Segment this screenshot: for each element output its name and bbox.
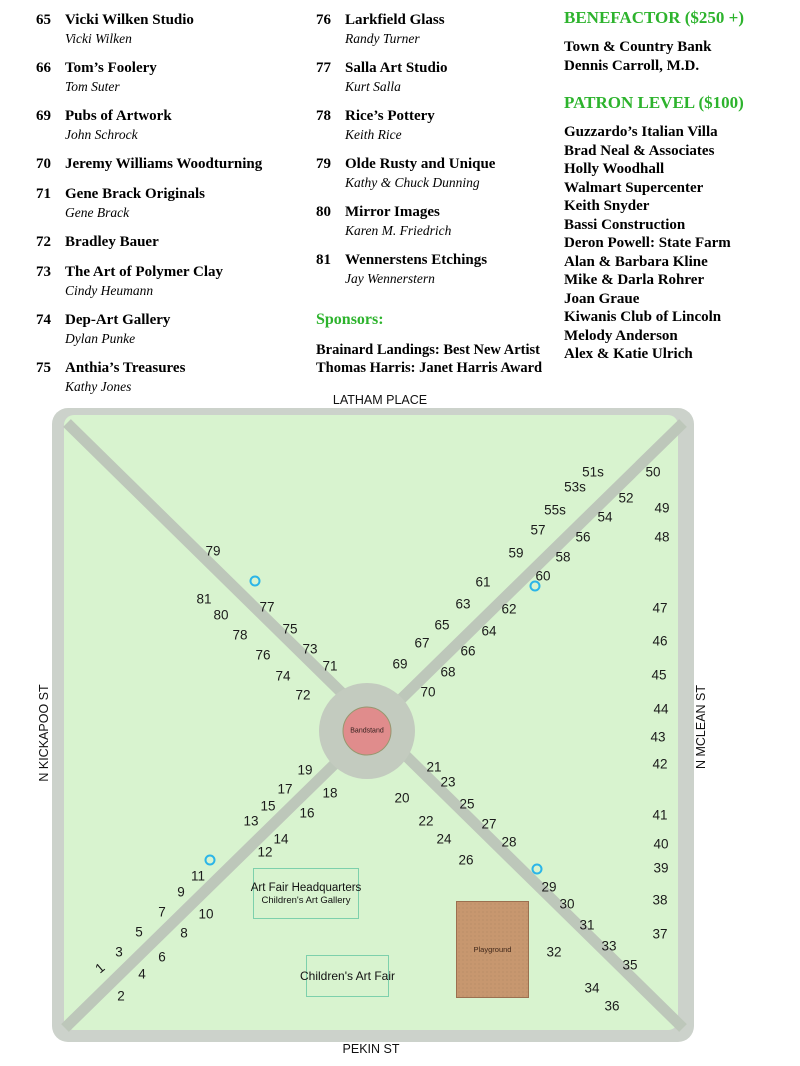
exhibitor-entry: 76Larkfield GlassRandy Turner bbox=[316, 12, 562, 47]
patron-item: Joan Graue bbox=[564, 290, 796, 309]
booth-number: 3 bbox=[115, 945, 123, 960]
booth-number: 20 bbox=[394, 791, 409, 806]
booth-number: 71 bbox=[322, 659, 337, 674]
booth-number: 2 bbox=[117, 989, 125, 1004]
booth-number: 26 bbox=[458, 853, 473, 868]
exhibitor-entry: 70Jeremy Williams Woodturning bbox=[36, 156, 314, 173]
booth-number: 55s bbox=[544, 503, 566, 518]
street-label-n-kickapoo-st: N KICKAPOO ST bbox=[37, 684, 51, 781]
booth-number: 41 bbox=[652, 808, 667, 823]
exhibitor-number: 75 bbox=[36, 360, 65, 377]
street-label-n-mclean-st: N MCLEAN ST bbox=[694, 685, 708, 769]
map-park-field bbox=[64, 415, 678, 1030]
benefactor-heading: BENEFACTOR ($250 +) bbox=[564, 8, 796, 28]
booth-number: 72 bbox=[295, 688, 310, 703]
exhibitor-artist: Jay Wennerstern bbox=[345, 271, 562, 287]
exhibitor-list: 76Larkfield GlassRandy Turner77Salla Art… bbox=[316, 12, 562, 287]
booth-number: 47 bbox=[652, 601, 667, 616]
patron-item: Holly Woodhall bbox=[564, 160, 796, 179]
exhibitor-entry: 78Rice’s PotteryKeith Rice bbox=[316, 108, 562, 143]
exhibitor-artist: Cindy Heumann bbox=[65, 283, 314, 299]
playground-label: Playground bbox=[474, 945, 512, 954]
exhibitor-column-2: 76Larkfield GlassRandy Turner77Salla Art… bbox=[316, 12, 562, 377]
exhibitor-name: The Art of Polymer Clay bbox=[65, 264, 223, 281]
booth-number: 23 bbox=[440, 775, 455, 790]
exhibitor-entry: 81Wennerstens EtchingsJay Wennerstern bbox=[316, 252, 562, 287]
booth-number: 6 bbox=[158, 950, 166, 965]
booth-number: 80 bbox=[213, 608, 228, 623]
patron-heading: PATRON LEVEL ($100) bbox=[564, 93, 796, 113]
patron-item: Alan & Barbara Kline bbox=[564, 253, 796, 272]
booth-number: 22 bbox=[418, 814, 433, 829]
booth-number: 4 bbox=[138, 967, 146, 982]
booth-number: 29 bbox=[541, 880, 556, 895]
booth-number: 9 bbox=[177, 885, 185, 900]
exhibitor-title: 78Rice’s Pottery bbox=[316, 108, 562, 125]
booth-number: 56 bbox=[575, 530, 590, 545]
exhibitor-name: Rice’s Pottery bbox=[345, 108, 435, 125]
exhibitor-title: 75Anthia’s Treasures bbox=[36, 360, 314, 377]
sponsors-heading: Sponsors: bbox=[316, 311, 562, 329]
booth-number: 65 bbox=[434, 618, 449, 633]
exhibitor-title: 66Tom’s Foolery bbox=[36, 60, 314, 77]
booth-number: 53s bbox=[564, 480, 586, 495]
exhibitor-name: Vicki Wilken Studio bbox=[65, 12, 194, 29]
benefactor-item: Dennis Carroll, M.D. bbox=[564, 57, 796, 76]
booth-number: 50 bbox=[645, 465, 660, 480]
hq-title: Art Fair Headquarters bbox=[251, 882, 362, 894]
booth-number: 13 bbox=[243, 814, 258, 829]
water-fountain-marker bbox=[530, 581, 541, 592]
exhibitor-entry: 72Bradley Bauer bbox=[36, 234, 314, 251]
exhibitor-artist: Vicki Wilken bbox=[65, 31, 314, 47]
exhibitor-number: 79 bbox=[316, 156, 345, 173]
exhibitor-artist: Gene Brack bbox=[65, 205, 314, 221]
booth-number: 76 bbox=[255, 648, 270, 663]
patron-item: Bassi Construction bbox=[564, 216, 796, 235]
exhibitor-artist: Dylan Punke bbox=[65, 331, 314, 347]
exhibitor-column-1: 65Vicki Wilken StudioVicki Wilken66Tom’s… bbox=[36, 12, 314, 408]
exhibitor-title: 65Vicki Wilken Studio bbox=[36, 12, 314, 29]
booth-number: 42 bbox=[652, 757, 667, 772]
exhibitor-name: Bradley Bauer bbox=[65, 234, 159, 251]
booth-number: 18 bbox=[322, 786, 337, 801]
patron-item: Keith Snyder bbox=[564, 197, 796, 216]
booth-number: 79 bbox=[205, 544, 220, 559]
exhibitor-entry: 71Gene Brack OriginalsGene Brack bbox=[36, 186, 314, 221]
exhibitor-title: 70Jeremy Williams Woodturning bbox=[36, 156, 314, 173]
booth-number: 39 bbox=[653, 861, 668, 876]
exhibitor-title: 74Dep-Art Gallery bbox=[36, 312, 314, 329]
street-label-latham-place: LATHAM PLACE bbox=[333, 393, 427, 407]
exhibitor-number: 72 bbox=[36, 234, 65, 251]
booth-number: 81 bbox=[196, 592, 211, 607]
booth-number: 32 bbox=[546, 945, 561, 960]
booth-number: 44 bbox=[653, 702, 668, 717]
booth-number: 33 bbox=[601, 939, 616, 954]
exhibitor-number: 78 bbox=[316, 108, 345, 125]
booth-number: 45 bbox=[651, 668, 666, 683]
exhibitor-name: Wennerstens Etchings bbox=[345, 252, 487, 269]
patron-list: Guzzardo’s Italian VillaBrad Neal & Asso… bbox=[564, 123, 796, 364]
exhibitor-name: Pubs of Artwork bbox=[65, 108, 172, 125]
booth-number: 64 bbox=[481, 624, 496, 639]
exhibitor-number: 70 bbox=[36, 156, 65, 173]
sponsor-line: Thomas Harris: Janet Harris Award bbox=[316, 359, 562, 377]
exhibitor-entry: 77Salla Art StudioKurt Salla bbox=[316, 60, 562, 95]
exhibitor-title: 71Gene Brack Originals bbox=[36, 186, 314, 203]
booth-number: 19 bbox=[297, 763, 312, 778]
booth-number: 57 bbox=[530, 523, 545, 538]
sponsor-lines: Brainard Landings: Best New ArtistThomas… bbox=[316, 341, 562, 377]
booth-number: 30 bbox=[559, 897, 574, 912]
exhibitor-entry: 80Mirror ImagesKaren M. Friedrich bbox=[316, 204, 562, 239]
exhibitor-title: 80Mirror Images bbox=[316, 204, 562, 221]
booth-number: 5 bbox=[135, 925, 143, 940]
booth-number: 34 bbox=[584, 981, 599, 996]
booth-number: 28 bbox=[501, 835, 516, 850]
booth-number: 25 bbox=[459, 797, 474, 812]
exhibitor-entry: 73The Art of Polymer ClayCindy Heumann bbox=[36, 264, 314, 299]
exhibitor-number: 81 bbox=[316, 252, 345, 269]
booth-number: 43 bbox=[650, 730, 665, 745]
booth-number: 51s bbox=[582, 465, 604, 480]
booth-number: 7 bbox=[158, 905, 166, 920]
booth-number: 75 bbox=[282, 622, 297, 637]
booth-number: 35 bbox=[622, 958, 637, 973]
exhibitor-title: 76Larkfield Glass bbox=[316, 12, 562, 29]
exhibitor-number: 73 bbox=[36, 264, 65, 281]
exhibitor-artist: Keith Rice bbox=[345, 127, 562, 143]
booth-number: 78 bbox=[232, 628, 247, 643]
exhibitor-name: Mirror Images bbox=[345, 204, 440, 221]
booth-number: 14 bbox=[273, 832, 288, 847]
exhibitor-name: Jeremy Williams Woodturning bbox=[65, 156, 262, 173]
exhibitor-number: 69 bbox=[36, 108, 65, 125]
booth-number: 40 bbox=[653, 837, 668, 852]
booth-number: 21 bbox=[426, 760, 441, 775]
booth-number: 54 bbox=[597, 510, 612, 525]
playground-area: Playground bbox=[456, 901, 529, 998]
exhibitor-entry: 69Pubs of ArtworkJohn Schrock bbox=[36, 108, 314, 143]
exhibitor-number: 65 bbox=[36, 12, 65, 29]
donor-column: BENEFACTOR ($250 +) Town & Country BankD… bbox=[564, 8, 796, 364]
exhibitor-title: 72Bradley Bauer bbox=[36, 234, 314, 251]
exhibitor-artist: Tom Suter bbox=[65, 79, 314, 95]
patron-item: Kiwanis Club of Lincoln bbox=[564, 308, 796, 327]
exhibitor-number: 76 bbox=[316, 12, 345, 29]
exhibitor-artist: Kathy Jones bbox=[65, 379, 314, 395]
booth-number: 49 bbox=[654, 501, 669, 516]
booth-number: 73 bbox=[302, 642, 317, 657]
exhibitor-name: Tom’s Foolery bbox=[65, 60, 157, 77]
booth-number: 36 bbox=[604, 999, 619, 1014]
water-fountain-marker bbox=[205, 855, 216, 866]
booth-number: 52 bbox=[618, 491, 633, 506]
childrens-art-fair-label: Children's Art Fair bbox=[300, 969, 395, 983]
patron-item: Walmart Supercenter bbox=[564, 179, 796, 198]
booth-number: 61 bbox=[475, 575, 490, 590]
booth-number: 68 bbox=[440, 665, 455, 680]
childrens-art-fair-box: Children's Art Fair bbox=[306, 955, 389, 997]
booth-number: 77 bbox=[259, 600, 274, 615]
patron-item: Brad Neal & Associates bbox=[564, 142, 796, 161]
bandstand-label: Bandstand bbox=[350, 728, 383, 735]
exhibitor-number: 80 bbox=[316, 204, 345, 221]
exhibitor-artist: Kathy & Chuck Dunning bbox=[345, 175, 562, 191]
street-label-pekin-st: PEKIN ST bbox=[343, 1042, 400, 1056]
booth-number: 66 bbox=[460, 644, 475, 659]
exhibitor-number: 71 bbox=[36, 186, 65, 203]
exhibitor-number: 66 bbox=[36, 60, 65, 77]
patron-item: Deron Powell: State Farm bbox=[564, 234, 796, 253]
booth-number: 31 bbox=[579, 918, 594, 933]
exhibitor-name: Olde Rusty and Unique bbox=[345, 156, 495, 173]
booth-number: 46 bbox=[652, 634, 667, 649]
booth-number: 37 bbox=[652, 927, 667, 942]
exhibitor-entry: 74Dep-Art GalleryDylan Punke bbox=[36, 312, 314, 347]
patron-item: Guzzardo’s Italian Villa bbox=[564, 123, 796, 142]
booth-number: 24 bbox=[436, 832, 451, 847]
exhibitor-title: 77Salla Art Studio bbox=[316, 60, 562, 77]
art-fair-flyer: 65Vicki Wilken StudioVicki Wilken66Tom’s… bbox=[0, 0, 800, 1066]
water-fountain-marker bbox=[250, 576, 261, 587]
exhibitor-entry: 79Olde Rusty and UniqueKathy & Chuck Dun… bbox=[316, 156, 562, 191]
exhibitor-entry: 65Vicki Wilken StudioVicki Wilken bbox=[36, 12, 314, 47]
exhibitor-name: Gene Brack Originals bbox=[65, 186, 205, 203]
booth-number: 70 bbox=[420, 685, 435, 700]
exhibitor-entry: 75Anthia’s TreasuresKathy Jones bbox=[36, 360, 314, 395]
exhibitor-name: Anthia’s Treasures bbox=[65, 360, 185, 377]
booth-number: 62 bbox=[501, 602, 516, 617]
water-fountain-marker bbox=[532, 864, 543, 875]
booth-number: 58 bbox=[555, 550, 570, 565]
exhibitor-entry: 66Tom’s FooleryTom Suter bbox=[36, 60, 314, 95]
exhibitor-number: 77 bbox=[316, 60, 345, 77]
exhibitor-title: 79Olde Rusty and Unique bbox=[316, 156, 562, 173]
booth-number: 38 bbox=[652, 893, 667, 908]
exhibitor-artist: Randy Turner bbox=[345, 31, 562, 47]
sponsor-line: Brainard Landings: Best New Artist bbox=[316, 341, 562, 359]
exhibitor-name: Salla Art Studio bbox=[345, 60, 448, 77]
patron-item: Alex & Katie Ulrich bbox=[564, 345, 796, 364]
benefactor-list: Town & Country BankDennis Carroll, M.D. bbox=[564, 38, 796, 75]
benefactor-item: Town & Country Bank bbox=[564, 38, 796, 57]
booth-number: 16 bbox=[299, 806, 314, 821]
booth-number: 17 bbox=[277, 782, 292, 797]
booth-number: 12 bbox=[257, 845, 272, 860]
exhibitor-artist: Karen M. Friedrich bbox=[345, 223, 562, 239]
exhibitor-title: 69Pubs of Artwork bbox=[36, 108, 314, 125]
art-fair-hq-box: Art Fair Headquarters Children's Art Gal… bbox=[253, 868, 359, 919]
exhibitor-artist: Kurt Salla bbox=[345, 79, 562, 95]
booth-number: 11 bbox=[191, 869, 205, 884]
booth-number: 67 bbox=[414, 636, 429, 651]
booth-number: 10 bbox=[198, 907, 213, 922]
hq-subtitle: Children's Art Gallery bbox=[262, 895, 351, 906]
booth-number: 59 bbox=[508, 546, 523, 561]
booth-number: 74 bbox=[275, 669, 290, 684]
booth-number: 69 bbox=[392, 657, 407, 672]
exhibitor-name: Larkfield Glass bbox=[345, 12, 445, 29]
exhibitor-title: 73The Art of Polymer Clay bbox=[36, 264, 314, 281]
patron-item: Melody Anderson bbox=[564, 327, 796, 346]
booth-number: 8 bbox=[180, 926, 188, 941]
booth-number: 63 bbox=[455, 597, 470, 612]
booth-number: 15 bbox=[260, 799, 275, 814]
exhibitor-name: Dep-Art Gallery bbox=[65, 312, 170, 329]
exhibitor-title: 81Wennerstens Etchings bbox=[316, 252, 562, 269]
exhibitor-artist: John Schrock bbox=[65, 127, 314, 143]
patron-item: Mike & Darla Rohrer bbox=[564, 271, 796, 290]
booth-number: 48 bbox=[654, 530, 669, 545]
booth-number: 27 bbox=[481, 817, 496, 832]
exhibitor-number: 74 bbox=[36, 312, 65, 329]
